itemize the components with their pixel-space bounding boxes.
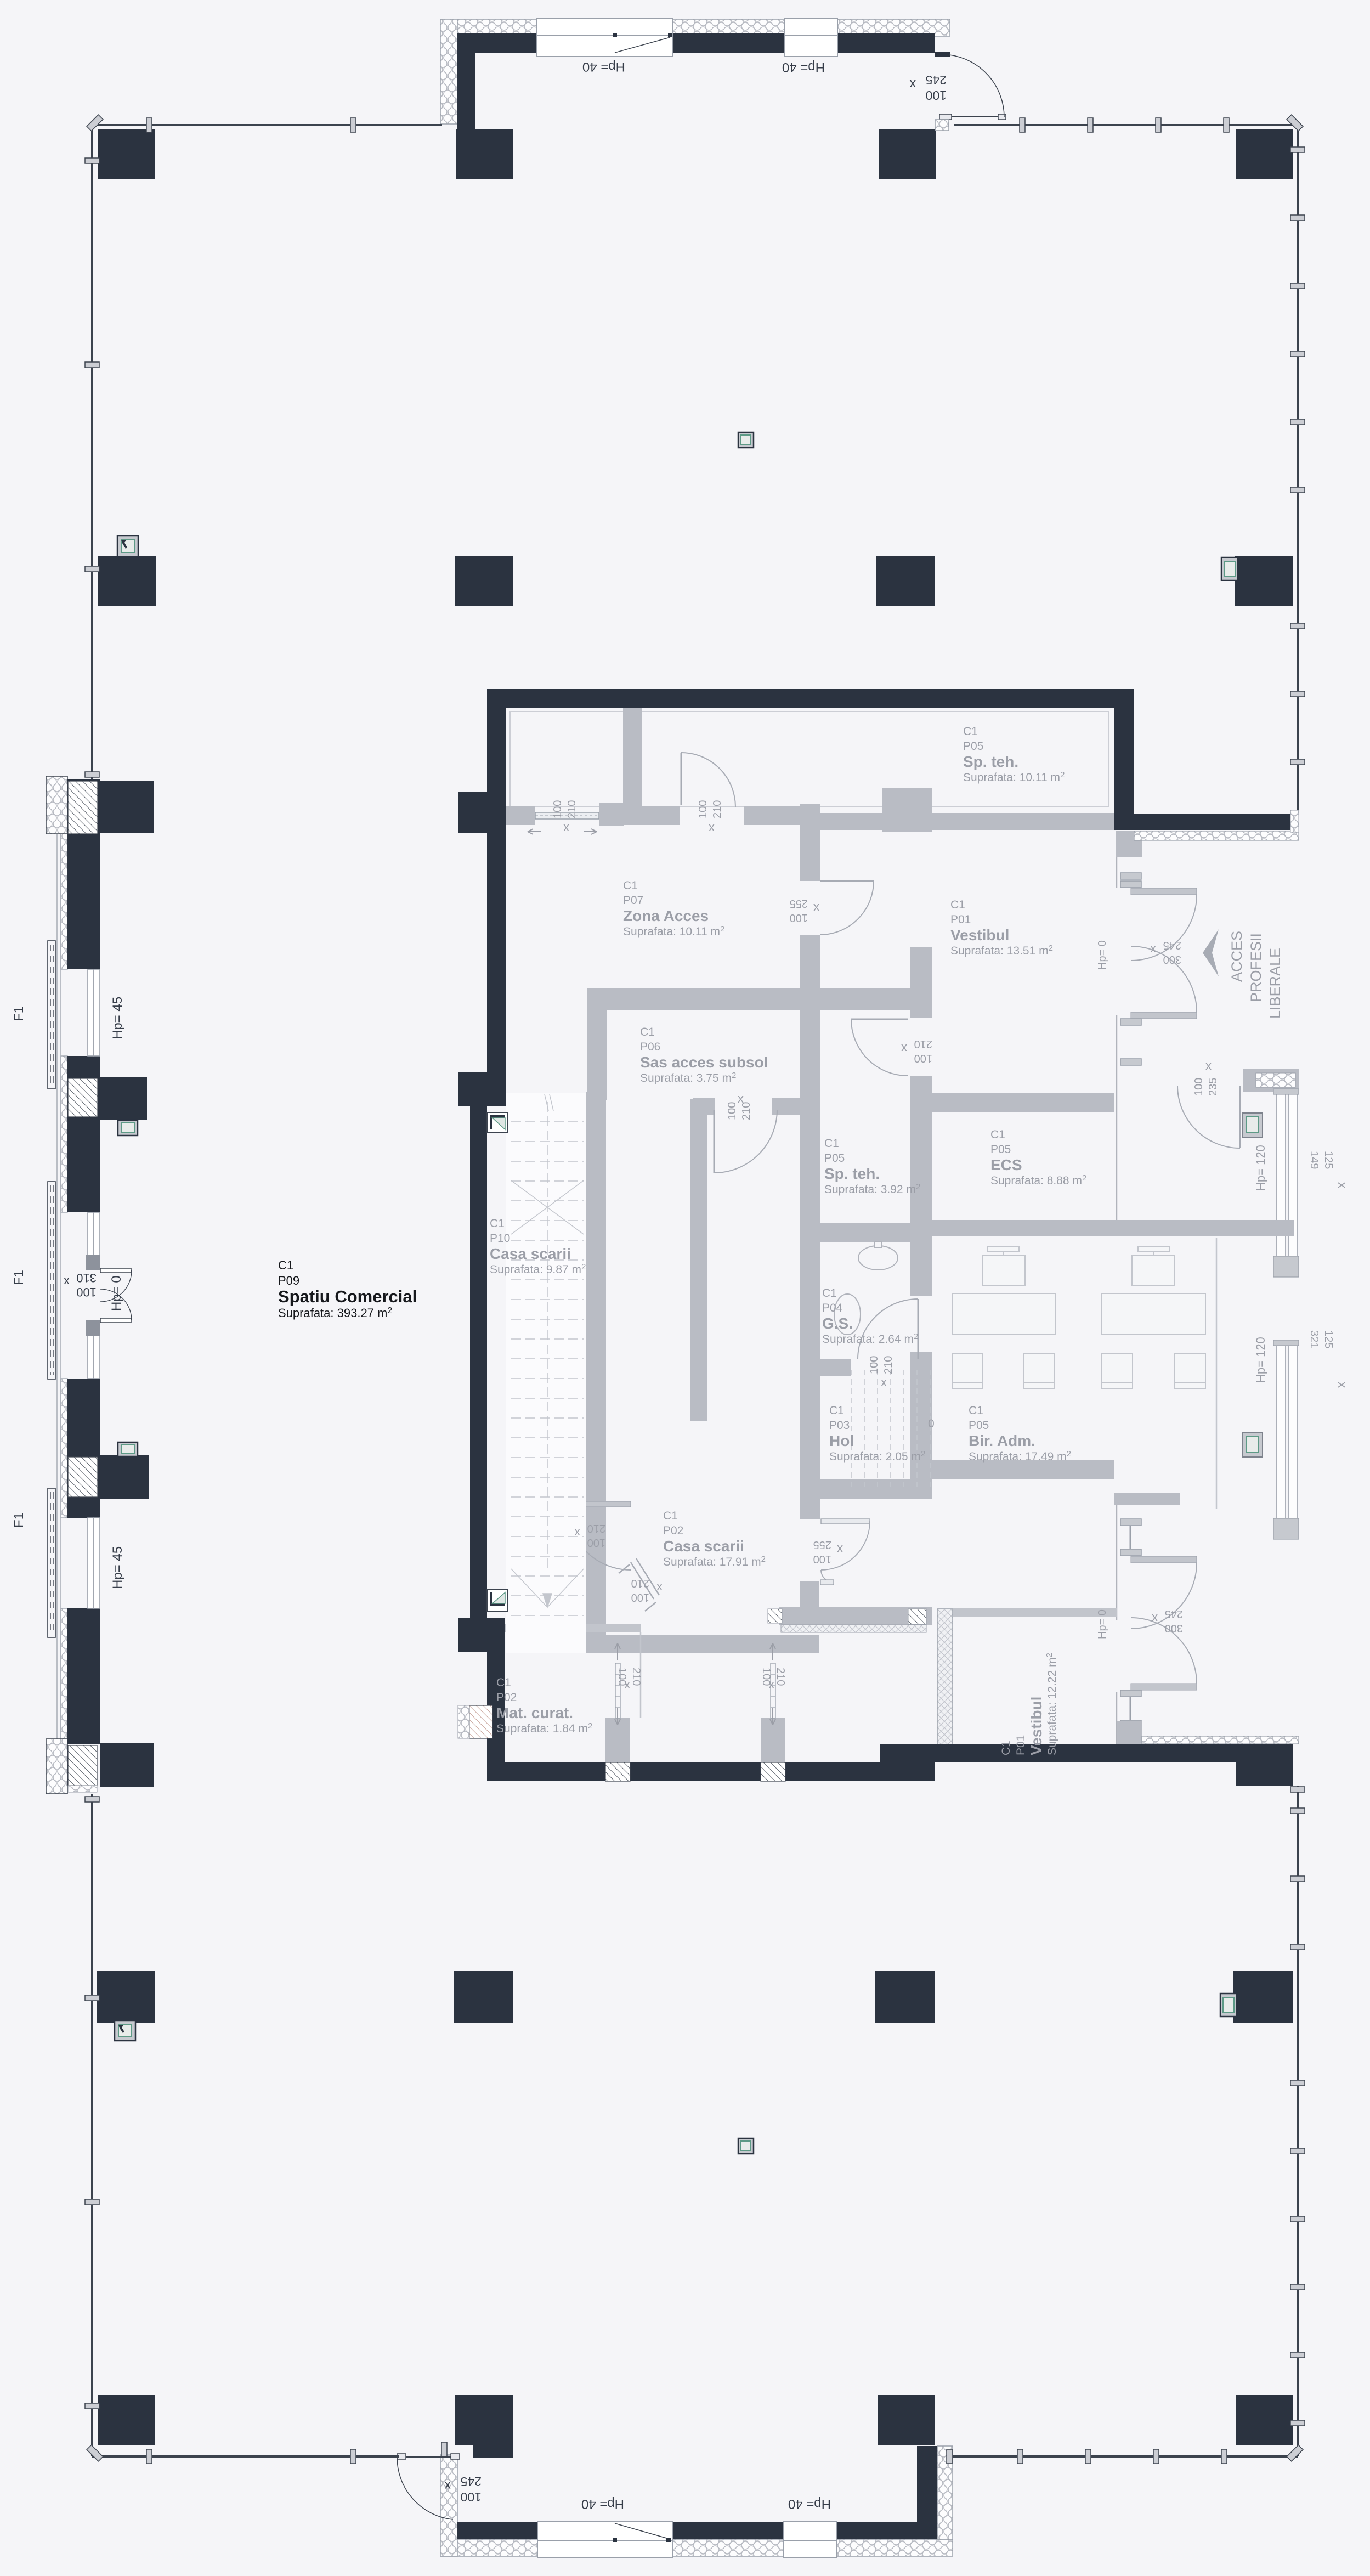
svg-text:Hp= 120: Hp= 120 [1254, 1145, 1267, 1191]
svg-text:G.S.: G.S. [822, 1315, 853, 1332]
svg-text:C1: C1 [829, 1404, 844, 1417]
svg-text:300: 300 [1163, 953, 1181, 965]
svg-text:P05: P05 [969, 1419, 989, 1432]
svg-text:x: x [709, 820, 715, 834]
svg-text:210: 210 [882, 1356, 895, 1374]
svg-text:P07: P07 [623, 894, 643, 907]
svg-text:P05: P05 [824, 1152, 845, 1165]
svg-text:300: 300 [1165, 1622, 1183, 1634]
svg-text:Suprafata: 10.11 m2: Suprafata: 10.11 m2 [623, 924, 724, 938]
svg-text:x: x [1335, 1382, 1349, 1388]
svg-text:Hp= 45: Hp= 45 [110, 1546, 125, 1589]
svg-text:100: 100 [697, 800, 709, 818]
svg-text:125: 125 [1322, 1330, 1334, 1348]
svg-text:210: 210 [631, 1577, 649, 1589]
svg-text:P10: P10 [490, 1232, 510, 1245]
svg-text:Suprafata: 393.27 m2: Suprafata: 393.27 m2 [278, 1306, 392, 1320]
svg-text:100: 100 [926, 88, 947, 103]
svg-text:Mat. curat.: Mat. curat. [496, 1704, 573, 1721]
svg-text:C1: C1 [824, 1137, 839, 1150]
svg-text:x: x [656, 1581, 663, 1595]
svg-text:Casa scarii: Casa scarii [663, 1538, 744, 1555]
svg-text:210: 210 [711, 800, 723, 818]
svg-text:Suprafata: 8.88 m2: Suprafata: 8.88 m2 [990, 1173, 1086, 1187]
svg-text:100: 100 [790, 912, 808, 924]
svg-text:x: x [1205, 1059, 1212, 1072]
svg-text:Hp= 0: Hp= 0 [1096, 1609, 1108, 1639]
svg-text:x: x [1152, 1612, 1158, 1625]
svg-text:255: 255 [790, 897, 808, 909]
svg-text:210: 210 [774, 1668, 786, 1686]
svg-text:C1: C1 [490, 1217, 505, 1230]
svg-text:Hp= 0: Hp= 0 [1096, 940, 1108, 970]
svg-text:Suprafata: 3.92 m2: Suprafata: 3.92 m2 [824, 1182, 920, 1196]
svg-text:245: 245 [1165, 1608, 1183, 1620]
svg-text:245: 245 [1163, 939, 1181, 951]
svg-text:100: 100 [868, 1356, 880, 1374]
svg-text:100: 100 [587, 1536, 605, 1549]
svg-text:P04: P04 [822, 1302, 843, 1314]
svg-text:C1: C1 [623, 879, 638, 892]
svg-text:x: x [624, 1677, 630, 1691]
svg-text:Hp= 40: Hp= 40 [581, 2496, 624, 2511]
svg-text:100: 100 [813, 1553, 831, 1565]
svg-text:Suprafata: 9.87 m2: Suprafata: 9.87 m2 [490, 1262, 586, 1276]
svg-text:C1: C1 [278, 1258, 293, 1272]
svg-text:100: 100 [461, 2490, 482, 2504]
svg-text:Suprafata: 13.51 m2: Suprafata: 13.51 m2 [950, 944, 1053, 957]
svg-text:Suprafata: 17.91 m2: Suprafata: 17.91 m2 [663, 1555, 766, 1568]
svg-text:Suprafata: 12.22 m2: Suprafata: 12.22 m2 [1045, 1653, 1058, 1755]
svg-text:P09: P09 [278, 1274, 299, 1287]
svg-text:P05: P05 [990, 1143, 1011, 1156]
svg-text:P02: P02 [496, 1691, 517, 1704]
svg-text:F1: F1 [12, 1512, 26, 1528]
svg-text:210: 210 [566, 800, 578, 818]
svg-text:C1: C1 [663, 1510, 678, 1522]
svg-text:125: 125 [1322, 1151, 1334, 1169]
svg-text:245: 245 [461, 2475, 482, 2489]
svg-text:100: 100 [726, 1102, 738, 1120]
svg-text:100: 100 [1193, 1078, 1205, 1096]
svg-text:C1: C1 [640, 1026, 655, 1038]
svg-text:Spatiu Comercial: Spatiu Comercial [278, 1287, 417, 1306]
svg-text:Suprafata: 2.05 m2: Suprafata: 2.05 m2 [829, 1449, 925, 1463]
svg-text:C1: C1 [963, 725, 978, 738]
svg-text:x: x [768, 1677, 774, 1691]
svg-text:x: x [738, 1092, 744, 1105]
svg-text:Hp= 120: Hp= 120 [1254, 1337, 1267, 1383]
svg-text:LIBERALE: LIBERALE [1267, 948, 1283, 1019]
svg-text:100: 100 [76, 1285, 97, 1299]
svg-text:x: x [1150, 943, 1156, 957]
svg-text:149: 149 [1308, 1151, 1320, 1169]
svg-text:C1: C1 [990, 1128, 1005, 1141]
svg-text:P06: P06 [640, 1041, 660, 1053]
svg-text:Zona Acces: Zona Acces [623, 907, 709, 924]
svg-text:210: 210 [630, 1668, 642, 1686]
svg-text:210: 210 [914, 1038, 932, 1050]
svg-text:P02: P02 [663, 1524, 683, 1537]
svg-text:C1: C1 [496, 1676, 511, 1689]
svg-text:100: 100 [914, 1052, 932, 1064]
svg-text:255: 255 [813, 1539, 831, 1551]
svg-text:F1: F1 [12, 1006, 26, 1021]
svg-text:Sas acces subsol: Sas acces subsol [640, 1054, 768, 1071]
svg-text:x: x [813, 901, 819, 915]
svg-text:P05: P05 [963, 740, 983, 753]
svg-text:ECS: ECS [990, 1156, 1022, 1173]
svg-text:P01: P01 [950, 913, 971, 926]
svg-text:C1: C1 [1000, 1741, 1012, 1755]
svg-text:x: x [444, 2479, 451, 2493]
svg-text:Hp= 0: Hp= 0 [109, 1275, 124, 1311]
svg-text:F1: F1 [12, 1270, 26, 1285]
svg-text:310: 310 [76, 1271, 97, 1285]
svg-text:x: x [563, 820, 569, 834]
svg-text:x: x [909, 77, 916, 92]
svg-text:Hp= 40: Hp= 40 [782, 60, 825, 75]
svg-text:PROFESII: PROFESII [1248, 933, 1264, 1002]
svg-text:Suprafata: 17.49 m2: Suprafata: 17.49 m2 [969, 1449, 1071, 1463]
svg-text:Hol: Hol [829, 1432, 854, 1449]
svg-text:x: x [1335, 1182, 1349, 1188]
svg-text:210: 210 [587, 1522, 605, 1534]
svg-text:Vestibul: Vestibul [950, 927, 1009, 944]
svg-text:Hp= 45: Hp= 45 [110, 997, 125, 1040]
svg-text:P03: P03 [829, 1419, 850, 1432]
svg-text:Suprafata: 3.75 m2: Suprafata: 3.75 m2 [640, 1071, 736, 1084]
svg-text:Sp. teh.: Sp. teh. [824, 1165, 880, 1182]
svg-text:Suprafata: 1.84 m2: Suprafata: 1.84 m2 [496, 1721, 592, 1735]
svg-text:Casa scarii: Casa scarii [490, 1245, 571, 1262]
svg-text:245: 245 [926, 73, 947, 87]
svg-text:x: x [837, 1543, 843, 1556]
svg-text:Suprafata: 2.64 m2: Suprafata: 2.64 m2 [822, 1332, 918, 1346]
svg-text:100: 100 [631, 1591, 649, 1603]
svg-text:C1: C1 [822, 1287, 837, 1300]
svg-text:x: x [901, 1042, 907, 1055]
svg-text:P01: P01 [1015, 1735, 1027, 1755]
svg-text:C1: C1 [950, 899, 965, 911]
svg-text:0: 0 [928, 1417, 935, 1430]
svg-text:Vestibul: Vestibul [1028, 1697, 1045, 1755]
svg-text:321: 321 [1308, 1330, 1320, 1348]
svg-text:x: x [574, 1526, 580, 1540]
svg-text:Hp= 40: Hp= 40 [788, 2496, 831, 2511]
svg-text:x: x [64, 1275, 70, 1289]
svg-text:x: x [881, 1375, 887, 1389]
svg-text:100: 100 [552, 800, 564, 818]
svg-text:Sp. teh.: Sp. teh. [963, 753, 1018, 770]
svg-text:235: 235 [1207, 1078, 1219, 1096]
svg-text:Bir. Adm.: Bir. Adm. [969, 1432, 1035, 1449]
svg-text:C1: C1 [969, 1404, 983, 1417]
svg-text:ACCES: ACCES [1229, 931, 1245, 982]
svg-text:Suprafata: 10.11 m2: Suprafata: 10.11 m2 [963, 770, 1065, 784]
svg-text:Hp= 40: Hp= 40 [582, 59, 625, 74]
